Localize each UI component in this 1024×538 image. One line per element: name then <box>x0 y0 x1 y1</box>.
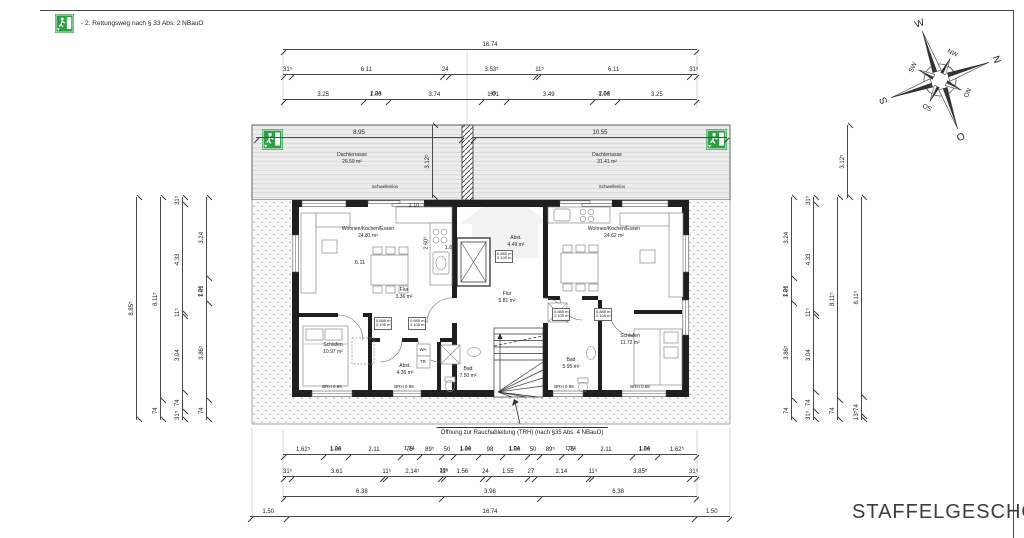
dim-segment: 50 <box>441 443 453 455</box>
dim-segment: 1.002.24 <box>592 88 617 100</box>
legend: - 2. Rettungsweg nach § 33 Abs. 2 NBauO <box>55 14 204 33</box>
dim-segment: 3.86⁵ <box>195 304 207 401</box>
room-bath-left: Bad7.50 m² <box>460 366 477 379</box>
dim-segment: 31⁵ <box>802 197 814 205</box>
compass-label-o: O <box>955 129 966 142</box>
dim-chain-bottom-walls: 31⁵3.6111⁵2.14⁵11⁵39⁵1.56241.55272.1411⁵… <box>283 465 697 477</box>
room-storage-core: Abst.4.49 m² <box>508 235 525 248</box>
dim-segment: 89⁵ <box>419 443 441 455</box>
compass-label-w: W <box>913 17 926 31</box>
dim-segment: 1.50 <box>250 505 286 517</box>
dim-chain-right-rooms: 743.86⁵1.012.243.24 <box>780 197 792 420</box>
dim-segment: 1.001.24 <box>453 443 478 455</box>
dim-segment: 4.33 <box>171 205 183 314</box>
dim-segment: 8.11⁵ <box>850 197 862 398</box>
terrace-left-label: Dachterrasse26.59 m² <box>337 152 367 165</box>
dim-chain-top-openings: 31⁵6.11243.53⁵11⁵6.1131⁵ <box>283 63 697 75</box>
terrace-right-label: Dachterrasse31.41 m² <box>592 152 622 165</box>
dim-segment: 1.002.24 <box>363 88 388 100</box>
compass-label-no: NO <box>962 87 972 99</box>
smoke-extraction-note: Öffnung zur Rauchableitung (TRH) (nach §… <box>437 427 608 436</box>
threshold-label-left: Schwellenlos <box>372 184 398 190</box>
dim-segment: 16.74 <box>286 505 693 517</box>
dim-living-width: 6.11 <box>355 260 365 266</box>
room-bedroom-right: Schlafen11.72 m² <box>620 333 639 346</box>
dim-segment: 74 <box>802 393 814 412</box>
dim-segment: 3.04 <box>171 317 183 394</box>
dim-segment: 3.98 <box>441 485 539 497</box>
dim-segment: 3.12⁵ <box>836 125 848 198</box>
dim-segment: 1.62⁵ <box>283 443 323 455</box>
dim-segment: 751.24 <box>561 443 580 455</box>
dim-chain-left-total: 8.85⁵ <box>125 197 137 420</box>
dim-chain-bottom-total: 1.5016.741.50 <box>250 505 730 517</box>
dim-segment: 8.11⁵ <box>826 197 838 401</box>
dim-chain-left-walls: 31⁵743.0411⁵4.3331⁵ <box>171 197 183 420</box>
dim-segment: 1.0149 <box>481 88 506 100</box>
dim-segment: 2.11 <box>580 443 632 455</box>
emergency-exit-icon <box>55 14 74 33</box>
dim-segment: 3.61 <box>291 465 382 477</box>
room-bath-right: Bad5.95 m² <box>563 357 580 370</box>
dryer-label: TR <box>420 359 426 364</box>
dim-chain-bottom-windows: 1.62⁵1.001.242.11751.2489⁵501.001.24981.… <box>283 443 697 455</box>
compass-label-n: N <box>990 54 1003 65</box>
threshold-label-right: Schwellenlos <box>599 184 625 190</box>
dim-segment: 8.85⁵ <box>125 197 137 420</box>
door-spec: 0.885 m2.105 m <box>408 317 426 330</box>
dim-segment: 74 <box>850 398 862 416</box>
compass-label-sw: SW <box>908 61 919 74</box>
dim-segment: 3.24 <box>780 197 792 279</box>
dim-segment: 31⁵ <box>171 412 183 420</box>
dim-segment: 1.012.24 <box>195 279 207 304</box>
watermark-logo <box>460 190 550 258</box>
dim-chain-right-outer: 748.11⁵ <box>826 197 838 420</box>
dim-segment: 6.11 <box>291 63 442 75</box>
dim-segment: 11⁵ <box>802 314 814 317</box>
dim-chain-bottom-rooms: 6.383.986.38 <box>283 485 697 497</box>
dim-shaft: 1.60 <box>445 245 456 251</box>
door-spec: 0.885 m2.105 m <box>552 308 570 321</box>
room-living-left: Wohnen/Kochen/Essen24.81 m² <box>342 226 394 239</box>
dim-terrace-depth-left: 3.12⁵ <box>421 125 433 198</box>
sill-label: BRH 0.88 <box>322 384 342 390</box>
dim-segment: 1.001.24 <box>632 443 657 455</box>
compass-label-s: S <box>878 95 891 105</box>
dim-segment: 2.11 <box>348 443 400 455</box>
dim-chain-top-detail: 3.251.002.243.741.01493.491.002.243.25 <box>283 88 697 100</box>
dim-segment: 1.012.24 <box>780 279 792 304</box>
dim-segment: 1.001.24 <box>323 443 348 455</box>
frame-right-border <box>1013 10 1014 538</box>
drawing-sheet: { "frame": { "title": "STAFFELGESCHOSS" … <box>0 0 1024 538</box>
dim-segment: 50 <box>527 443 539 455</box>
compass-rose: N O S W NW NO SO SW <box>870 10 1010 150</box>
compass-label-so: SO <box>922 102 933 112</box>
dim-segment: 3.53⁵ <box>448 63 535 75</box>
room-storage-left: Abst.4.36 m² <box>397 363 414 376</box>
dim-segment: 1.50 <box>694 505 730 517</box>
legend-text: - 2. Rettungsweg nach § 33 Abs. 2 NBauO <box>81 20 204 27</box>
room-hall-core: Flur5.81 m² <box>499 291 516 304</box>
dim-segment: 1.55 <box>488 465 527 477</box>
dim-segment: 31⁵ <box>802 412 814 420</box>
dim-segment: 8.11⁵ <box>149 197 161 401</box>
dim-segment: 2.14⁵ <box>385 465 439 477</box>
sill-label: BRH 0.88 <box>394 384 414 390</box>
dim-terrace-depth-right: 3.12⁵ <box>836 125 848 198</box>
dim-segment: 3.25 <box>617 88 697 100</box>
dim-segment: 3.74 <box>388 88 481 100</box>
dim-segment: 6.11 <box>538 63 689 75</box>
room-bedroom-left: Schlafen10.97 m² <box>323 342 343 355</box>
dim-chain-right-total: 13⁵748.11⁵ <box>850 197 862 420</box>
room-hall-left: Flur3.36 m² <box>396 287 413 300</box>
sill-label: BRH 0.88 <box>630 384 650 390</box>
dim-segment: 3.85⁵ <box>591 465 689 477</box>
dim-segment: 11⁵ <box>171 314 183 317</box>
dim-segment: 2.14 <box>534 465 588 477</box>
dim-chain-left-outer: 748.11⁵ <box>149 197 161 420</box>
dim-segment: 74 <box>149 401 161 420</box>
dim-segment: 1.56 <box>443 465 483 477</box>
dim-segment: 16.74 <box>283 38 697 50</box>
drawing-title: STAFFELGESCHOSS <box>852 501 1024 524</box>
dim-segment: 3.25 <box>283 88 363 100</box>
door-spec: 0.885 m2.105 m <box>594 308 612 321</box>
dim-segment: 751.24 <box>400 443 419 455</box>
dim-segment: 31⁵ <box>283 63 291 75</box>
dim-segment: 3.04 <box>802 317 814 394</box>
dim-segment: 3.86⁵ <box>780 304 792 401</box>
door-spec: 0.885 m2.105 m <box>495 250 513 263</box>
dim-segment: 3.12⁵ <box>421 125 433 198</box>
dim-segment: 31⁵ <box>171 197 183 205</box>
dim-segment: 1.62⁵ <box>657 443 697 455</box>
dim-segment: 6.38 <box>539 485 697 497</box>
dim-segment: 74 <box>826 401 838 420</box>
dim-segment: 31⁵ <box>689 465 697 477</box>
dim-segment: 10.55 <box>473 126 727 138</box>
dim-segment: 74 <box>171 393 183 412</box>
dim-segment: 74 <box>195 401 207 420</box>
compass-label-nw: NW <box>946 48 960 59</box>
dim-chain-top-total: 16.74 <box>283 38 697 50</box>
dim-segment: 13⁵ <box>850 417 862 420</box>
dim-segment: 3.49 <box>506 88 592 100</box>
sill-label: BRH 0.88 <box>554 384 574 390</box>
dim-segment: 27 <box>527 465 534 477</box>
dim-segment: 89⁵ <box>539 443 561 455</box>
dim-segment: 6.38 <box>283 485 441 497</box>
dim-kitchen-side: 2.60⁵ <box>424 237 430 250</box>
door-spec: 0.885 m2.105 m <box>374 317 392 330</box>
dim-segment: 31⁵ <box>689 63 697 75</box>
dim-terrace-right-width: 10.55 <box>473 126 727 138</box>
dim-segment: 31⁵ <box>283 465 291 477</box>
frame-top-border <box>40 10 1013 11</box>
dim-chain-left-rooms: 743.86⁵1.012.243.24 <box>195 197 207 420</box>
dim-kitchen-top: 2.10 <box>409 203 420 209</box>
room-living-right: Wohnen/Kochen/Essen24.62 m² <box>588 226 640 239</box>
dim-segment: 1.001.24 <box>502 443 527 455</box>
dim-chain-right-walls: 31⁵743.0411⁵4.3331⁵ <box>802 197 814 420</box>
dim-segment: 4.33 <box>802 205 814 314</box>
dim-segment: 3.24 <box>195 197 207 279</box>
dim-segment: 74 <box>780 401 792 420</box>
dim-segment: 98 <box>478 443 502 455</box>
washer-label: WA <box>419 347 426 352</box>
